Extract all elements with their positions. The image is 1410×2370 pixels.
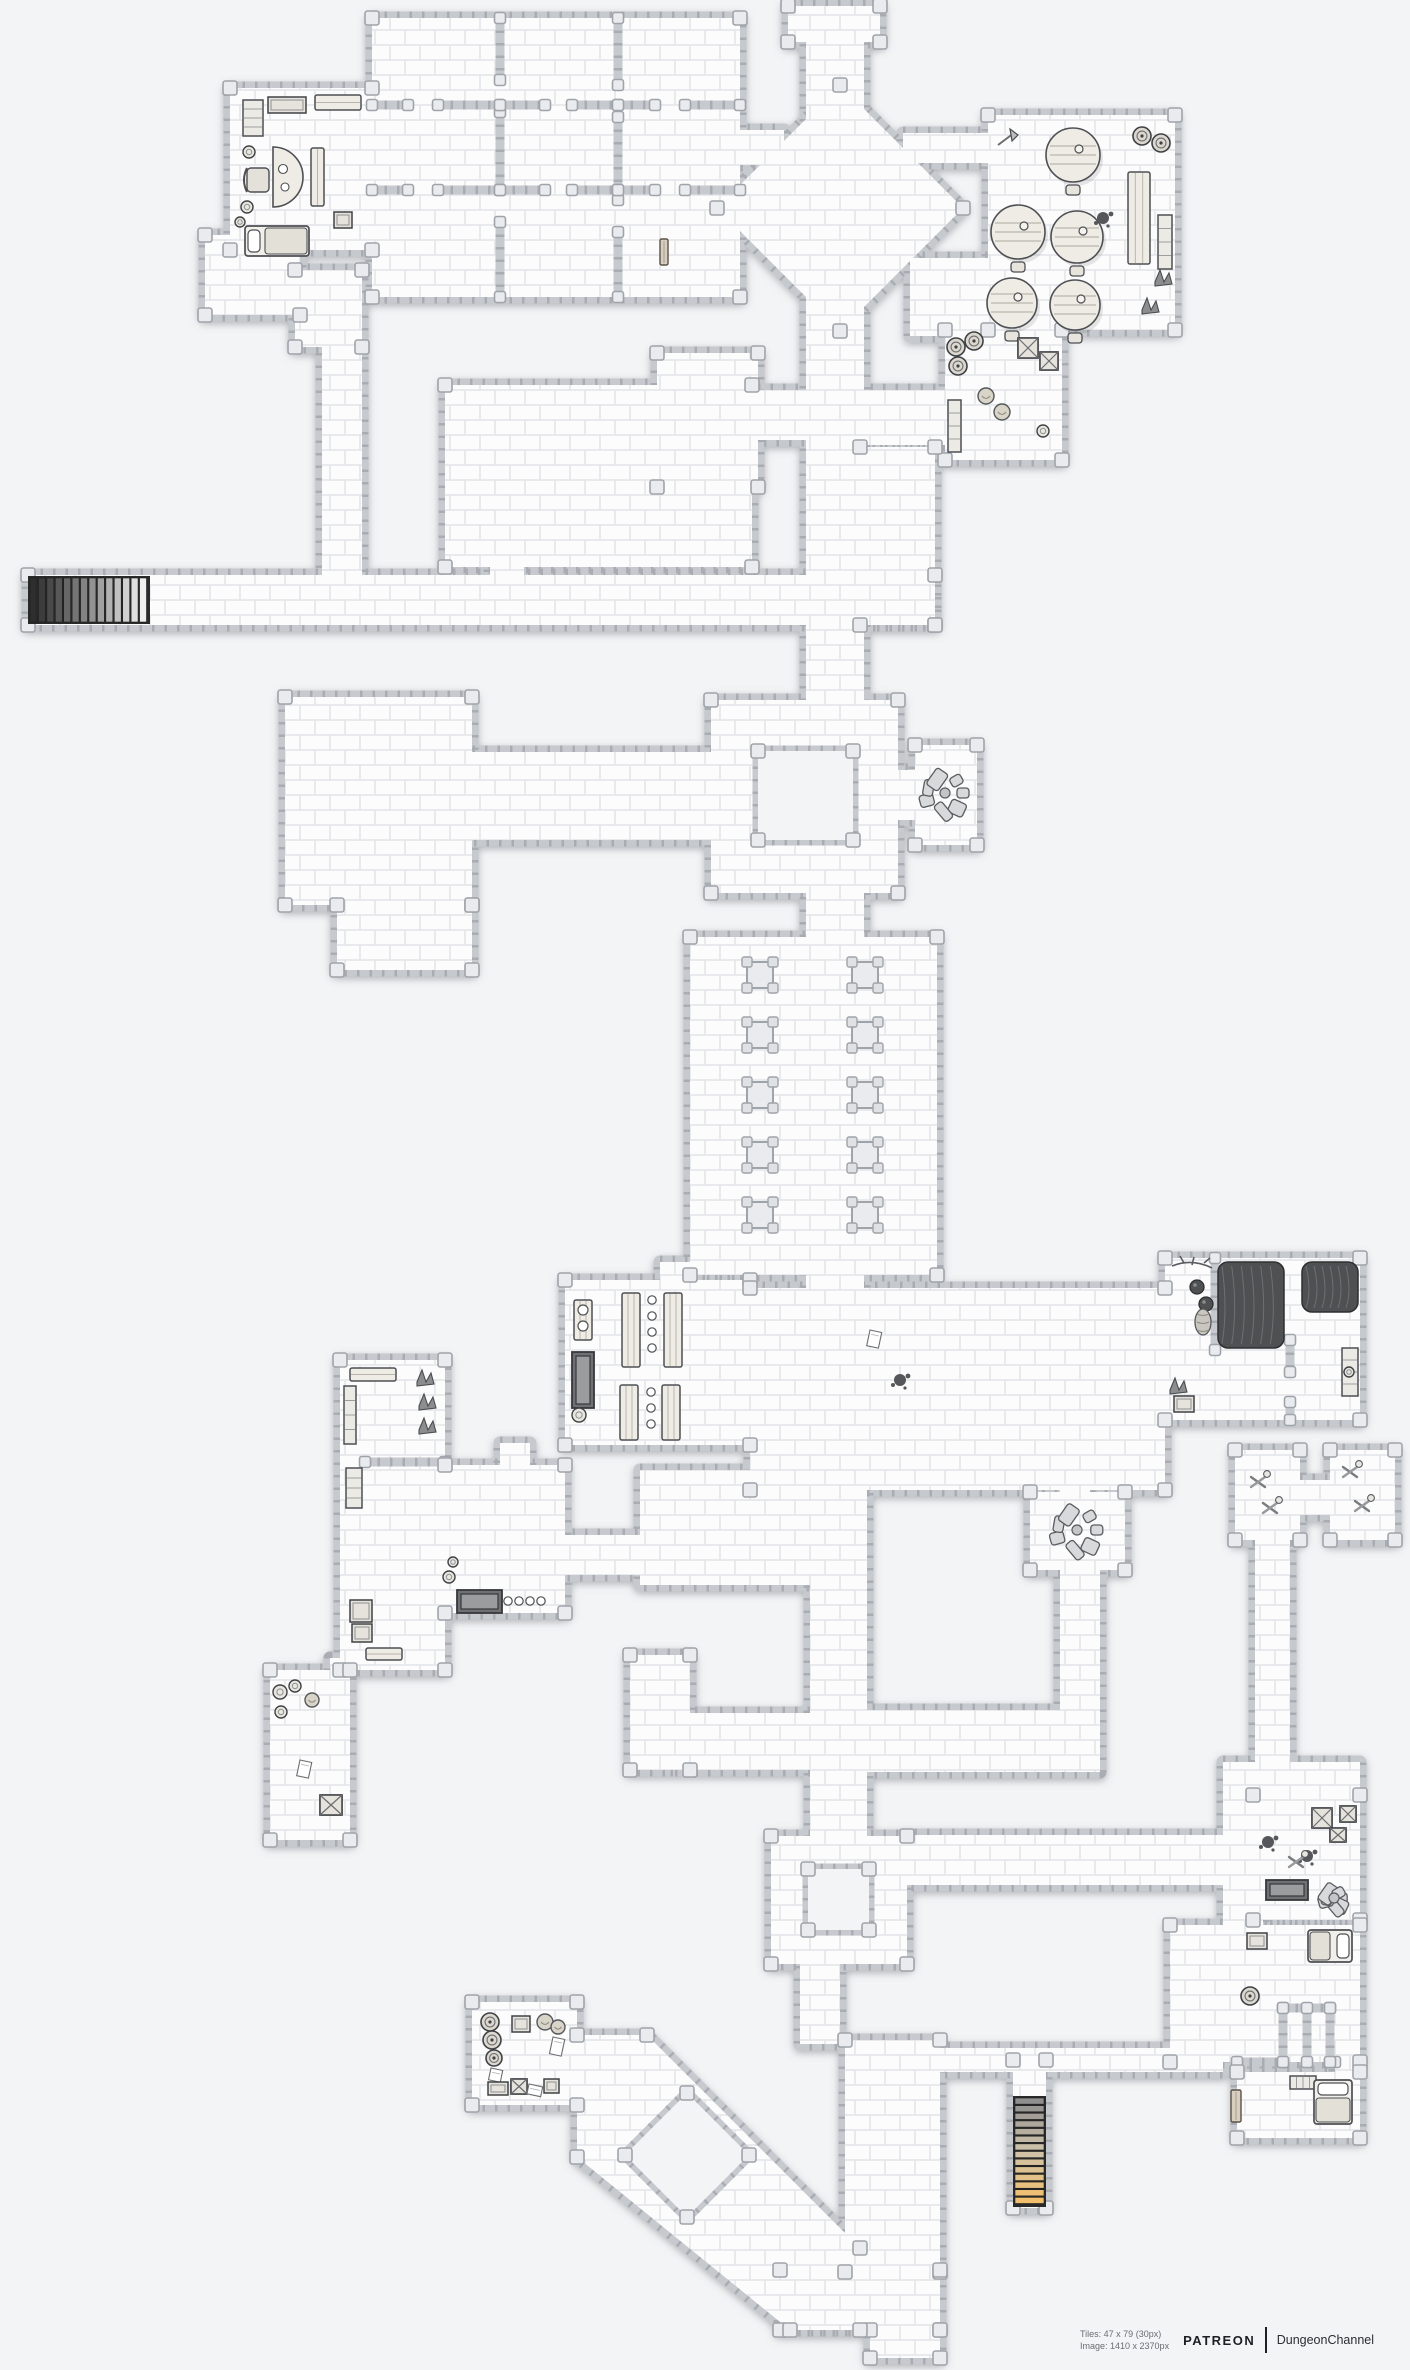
stove [572,1352,594,1408]
eggs [1190,1280,1204,1294]
paper [297,1760,312,1778]
xcrate [1330,1828,1346,1842]
door-hall-rubble [1060,1483,1090,1499]
paper [527,2084,543,2097]
corr-ring-east [902,1835,1233,1885]
shelf [346,1468,362,1508]
shelf [243,100,263,136]
table [311,148,324,206]
brand: PATREON DungeonChannel [1183,2327,1374,2353]
pot [235,217,245,227]
barrel [949,357,967,375]
corr-diamond-tavern [903,133,996,163]
floor-shapes [28,6,1395,2358]
rubble-neck [893,770,915,820]
counter [574,1300,592,1340]
channel-name: DungeonChannel [1277,2333,1374,2347]
shelf [1290,2076,1316,2089]
north-landing [788,6,880,42]
crate [512,2016,530,2032]
brand-divider-icon [1265,2327,1267,2353]
paper [489,2068,503,2082]
chair [244,168,269,192]
west-entrance-stairs [28,576,150,624]
patreon-logo: PATREON [1183,2333,1255,2348]
barracks-complex [372,18,740,297]
corr-skel-down [1255,1535,1290,1770]
table [1128,172,1150,264]
pot [443,1571,455,1583]
corr-h3 [860,1710,1100,1772]
table [350,1368,396,1381]
pot [1037,425,1049,437]
paper [867,1330,882,1348]
cocoon [1195,1309,1211,1335]
corr-east-west [935,2048,1223,2072]
crate [1247,1933,1267,1949]
xcrate [1340,1806,1356,1822]
barrel [1152,134,1170,152]
t-room-ext [337,905,472,970]
door-hall-lair [1158,1345,1172,1378]
stove [457,1590,502,1613]
barrel [1241,1987,1259,2005]
shelf [1158,215,1172,269]
donut-hole [758,751,853,840]
door-bedroom-complex [362,140,384,176]
crate [488,2082,508,2095]
door-hearth-kitchen [500,1443,530,1473]
pillar-hall [690,937,937,1275]
nest [1302,1262,1358,1312]
door-b-corridor [490,560,524,582]
crate [544,2079,559,2093]
barrel [486,2050,502,2066]
barrel [965,332,983,350]
barrel [481,2013,499,2031]
corr-t-donut [460,752,718,840]
connector-ring-hall [800,1962,840,2044]
doorleaf [660,239,668,265]
long-corridor [28,575,935,625]
xcrate [1018,338,1038,358]
map-meta: Tiles: 47 x 79 (30px) Image: 1410 x 2370… [1080,2328,1169,2352]
dungeon-map-container [0,0,1410,2370]
ring-block [808,1869,869,1930]
shelf [948,400,961,452]
bed [1314,2080,1352,2124]
pot [1344,1367,1354,1377]
table [622,1293,640,1367]
bed [245,226,309,256]
pot [572,1408,586,1422]
south-down-stairs [1013,2096,1046,2207]
xcrate [511,2079,527,2094]
crate [352,1624,372,1642]
mid-stem [806,295,864,715]
junction-band [1223,1762,1360,1797]
barrel [947,338,965,356]
corr-l3 [322,347,362,580]
barrel [1133,127,1151,145]
xcrate [1040,352,1058,370]
table [315,95,361,110]
room-rb [860,447,935,625]
corr-stem-storage [858,390,949,445]
dungeon-map [0,0,1410,2370]
passage-hearth-ext [560,1535,645,1575]
nest [1218,1262,1284,1348]
great-hall [750,1288,1165,1490]
pot [448,1557,458,1567]
wide-room-b [445,385,752,567]
crate [350,1600,372,1622]
skeleton-cell-west [1235,1450,1300,1540]
corr-complex-diamond [735,130,784,165]
dots [647,1388,655,1428]
pot [275,1706,287,1718]
south-stem [810,1583,867,1841]
vlink-rubble [1060,1562,1100,1718]
south-hall-stub [870,2330,940,2358]
bed [1308,1930,1352,1962]
stem-donut-hall [806,888,864,942]
xcrate [1312,1808,1332,1828]
crate [268,97,306,113]
xcrate [320,1795,342,1815]
stove [1266,1880,1308,1900]
pot [273,1685,287,1699]
crate [1174,1396,1194,1412]
neck-a-stem [758,390,806,440]
sack [994,404,1010,420]
t-room [285,697,472,905]
barrel [483,2031,501,2049]
sack [978,388,994,404]
pot [243,146,255,158]
sack [551,2020,565,2034]
skeleton-neck [1300,1480,1330,1515]
shelf [344,1386,356,1444]
table [620,1385,638,1440]
image-info: Image: 1410 x 2370px [1080,2340,1169,2352]
pot [241,201,253,213]
door-lab-hearth [433,1505,457,1540]
table [662,1385,680,1440]
south-hall [845,2040,940,2272]
doorleaf [1231,2090,1241,2122]
tiles-info: Tiles: 47 x 79 (30px) [1080,2328,1169,2340]
crate [334,212,352,228]
nook-arm [670,1713,818,1770]
pot [289,1680,301,1692]
table [366,1648,402,1660]
sack [305,1693,319,1707]
table [664,1293,682,1367]
footer: Tiles: 47 x 79 (30px) Image: 1410 x 2370… [1080,2320,1410,2360]
